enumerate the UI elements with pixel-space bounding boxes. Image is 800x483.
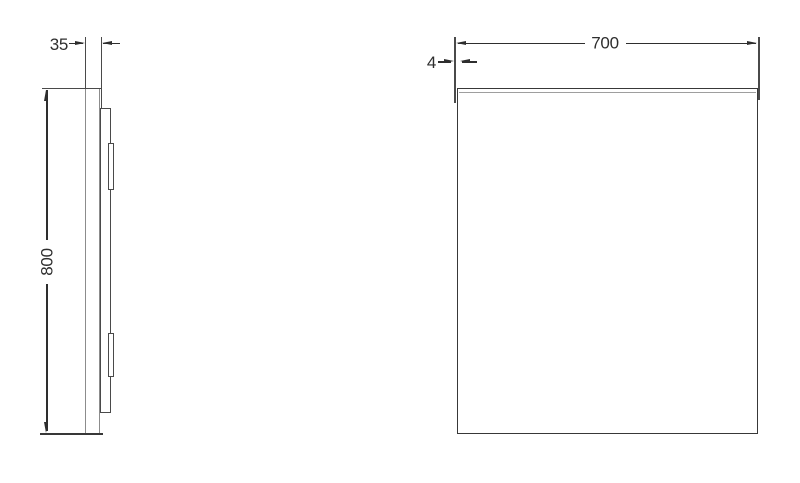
height-dimension-label: 800: [39, 248, 56, 275]
technical-drawing-canvas: 35 800 700 4: [0, 0, 800, 483]
depth-extension-line-right: [101, 37, 102, 108]
depth-extension-line-left: [85, 37, 86, 88]
thickness-dimension-line-right: [462, 61, 477, 62]
front-view-glass-edge-line: [459, 92, 756, 93]
depth-dimension-label: 35: [38, 36, 68, 53]
thickness-arrow-right-icon: [444, 59, 454, 63]
side-view-bracket-top: [108, 143, 114, 190]
width-extension-line-right: [758, 37, 759, 100]
height-extension-line-bottom: [40, 433, 103, 435]
thickness-dimension-label: 4: [420, 54, 436, 71]
height-arrow-down-icon: [44, 422, 48, 433]
height-dimension-line-lower: [46, 284, 47, 431]
width-arrow-left-icon: [456, 41, 466, 45]
side-view-bracket-bottom: [108, 333, 114, 377]
width-arrow-right-icon: [747, 41, 757, 45]
height-arrow-up-icon: [44, 90, 48, 101]
width-dimension-line-right: [626, 43, 756, 44]
width-dimension-line-left: [458, 43, 585, 44]
depth-arrow-right-icon: [75, 41, 85, 45]
width-extension-line-left: [454, 37, 455, 103]
width-dimension-label: 700: [591, 35, 618, 52]
depth-dimension-line-right: [103, 43, 120, 44]
side-view-mirror-body: [85, 88, 100, 434]
height-dimension-line-upper: [46, 90, 47, 240]
front-view-mirror-face: [457, 88, 758, 434]
height-extension-line-top: [42, 88, 102, 90]
